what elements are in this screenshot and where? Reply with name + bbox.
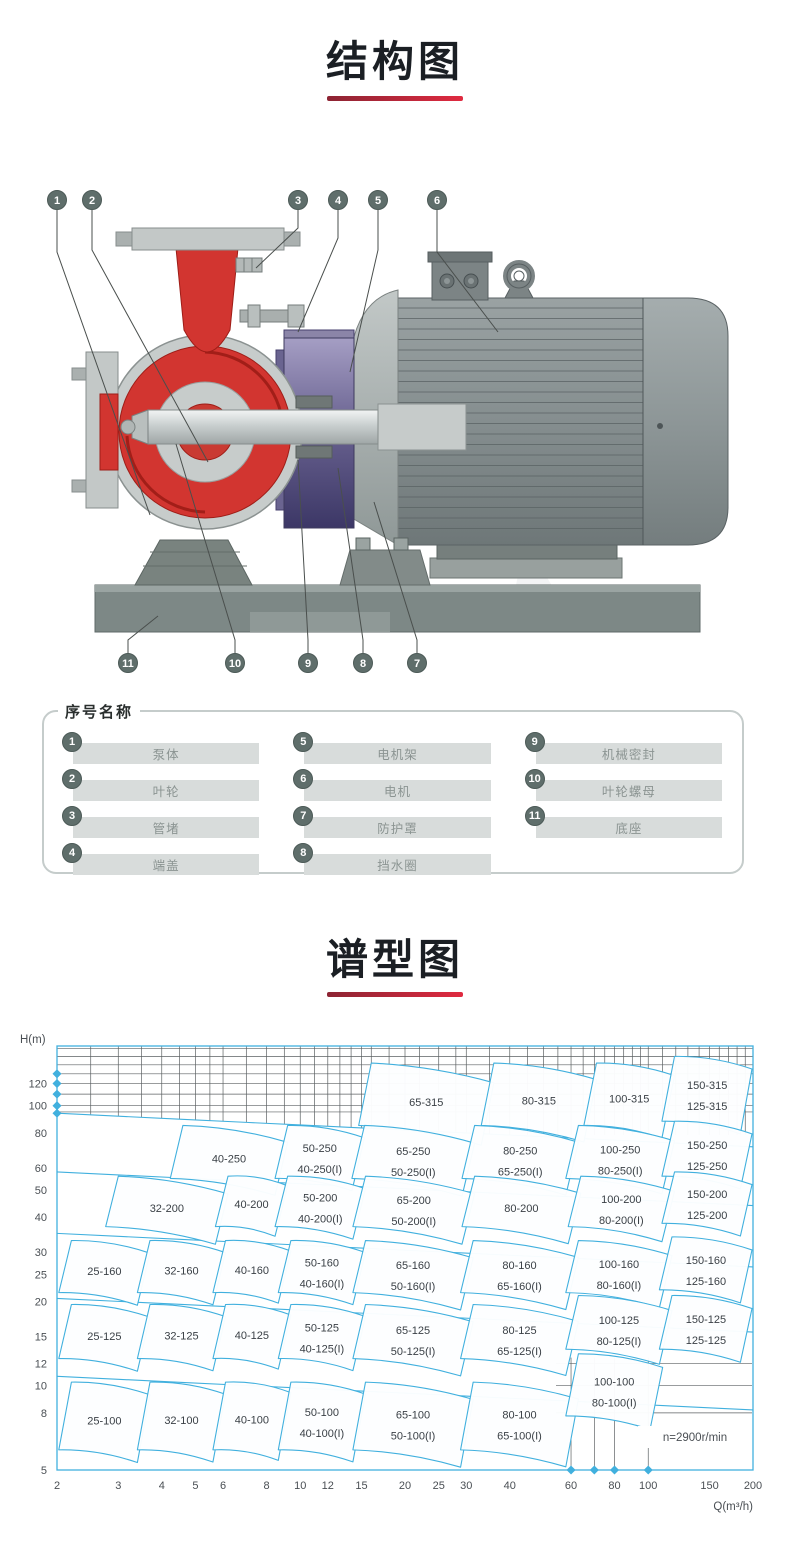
structure-section-title: 结构图 bbox=[0, 28, 790, 89]
legend-item: 防护罩7 bbox=[291, 806, 492, 840]
axis-marker bbox=[52, 1079, 61, 1088]
model-region-label: 65-125 bbox=[396, 1325, 430, 1337]
legend-item-bar: 底座 bbox=[536, 817, 722, 838]
x-tick-label: 30 bbox=[460, 1480, 472, 1492]
structure-title-underline bbox=[327, 96, 463, 101]
model-region bbox=[353, 1241, 473, 1310]
x-tick-label: 6 bbox=[220, 1480, 226, 1492]
legend-item: 泵体1 bbox=[60, 732, 261, 766]
model-region-label: 32-100 bbox=[164, 1415, 198, 1427]
axis-marker bbox=[610, 1465, 619, 1474]
y-tick-label: 100 bbox=[29, 1101, 47, 1113]
model-region-label: 125-160 bbox=[686, 1276, 726, 1288]
axis-marker bbox=[590, 1465, 599, 1474]
model-region-label: 65-315 bbox=[409, 1097, 443, 1109]
y-tick-label: 120 bbox=[29, 1079, 47, 1091]
x-tick-label: 20 bbox=[399, 1480, 411, 1492]
model-region-label: 65-160 bbox=[396, 1260, 430, 1272]
y-tick-label: 60 bbox=[35, 1163, 47, 1175]
axis-marker bbox=[52, 1109, 61, 1118]
terminal-box bbox=[428, 252, 492, 300]
model-region bbox=[566, 1354, 663, 1430]
model-region-label: 25-100 bbox=[87, 1415, 121, 1427]
legend-item-bar: 机械密封 bbox=[536, 743, 722, 764]
model-region-label: 80-100 bbox=[502, 1409, 536, 1421]
model-region-label: 50-100(I) bbox=[391, 1431, 436, 1443]
model-region bbox=[353, 1382, 473, 1467]
y-tick-label: 40 bbox=[35, 1212, 47, 1224]
model-region-label: 32-160 bbox=[164, 1266, 198, 1278]
model-region-label: 80-160 bbox=[502, 1260, 536, 1272]
model-region-label: 40-160(I) bbox=[300, 1279, 345, 1291]
x-tick-label: 100 bbox=[639, 1480, 657, 1492]
x-tick-label: 3 bbox=[115, 1480, 121, 1492]
model-region-label: 80-125(I) bbox=[597, 1336, 642, 1348]
model-region-label: 25-125 bbox=[87, 1331, 121, 1343]
y-tick-label: 12 bbox=[35, 1359, 47, 1371]
model-region-label: 32-125 bbox=[164, 1331, 198, 1343]
model-region-label: 65-160(I) bbox=[497, 1281, 542, 1293]
legend-item: 管堵3 bbox=[60, 806, 261, 840]
legend-item-bar: 泵体 bbox=[73, 743, 259, 764]
x-tick-label: 4 bbox=[159, 1480, 165, 1492]
model-region-label: 50-200 bbox=[303, 1193, 337, 1205]
callout-number: 4 bbox=[335, 195, 342, 207]
model-region-label: 50-125(I) bbox=[391, 1346, 436, 1358]
model-region-label: 100-100 bbox=[594, 1377, 634, 1389]
y-tick-label: 50 bbox=[35, 1185, 47, 1197]
model-region-label: 125-250 bbox=[687, 1161, 727, 1173]
discharge-nozzle bbox=[116, 228, 300, 352]
model-region bbox=[662, 1172, 752, 1236]
legend-item-number: 2 bbox=[62, 769, 82, 789]
model-region-label: 150-125 bbox=[686, 1314, 726, 1326]
axis-marker bbox=[567, 1465, 576, 1474]
x-tick-label: 12 bbox=[322, 1480, 334, 1492]
model-region-label: 40-250 bbox=[212, 1153, 246, 1165]
model-region-label: 80-250(I) bbox=[598, 1166, 643, 1178]
model-region-label: 65-200 bbox=[397, 1195, 431, 1207]
type-spectrum-chart: 65-31580-315100-315150-315125-31540-2505… bbox=[0, 1030, 790, 1545]
y-tick-label: 10 bbox=[35, 1381, 47, 1393]
callout-number: 5 bbox=[375, 195, 381, 207]
model-region-label: 40-100 bbox=[235, 1414, 269, 1426]
legend-item-number: 1 bbox=[62, 732, 82, 752]
pump-structure-diagram: 1234561110987 bbox=[40, 185, 760, 680]
legend-grid: 泵体1叶轮2管堵3端盖4电机架5电机6防护罩7挡水圈8机械密封9叶轮螺母10底座… bbox=[44, 712, 742, 883]
x-tick-label: 60 bbox=[565, 1480, 577, 1492]
model-region-label: 125-125 bbox=[686, 1335, 726, 1347]
legend-item-bar: 电机 bbox=[304, 780, 490, 801]
legend-item-bar: 挡水圈 bbox=[304, 854, 490, 875]
legend-item: 电机架5 bbox=[291, 732, 492, 766]
model-region-label: 80-200 bbox=[504, 1203, 538, 1215]
model-region-label: 65-100(I) bbox=[497, 1430, 542, 1442]
x-tick-label: 200 bbox=[744, 1480, 762, 1492]
model-region-label: 80-200(I) bbox=[599, 1215, 644, 1227]
model-region-label: 100-200 bbox=[601, 1194, 641, 1206]
axis-marker bbox=[52, 1069, 61, 1078]
y-tick-label: 15 bbox=[35, 1331, 47, 1343]
legend-item-number: 10 bbox=[525, 769, 545, 789]
model-region-label: 50-160 bbox=[305, 1258, 339, 1270]
legend-item: 端盖4 bbox=[60, 843, 261, 877]
callout-number: 3 bbox=[295, 195, 301, 207]
y-tick-label: 25 bbox=[35, 1269, 47, 1281]
callout-number: 1 bbox=[54, 195, 60, 207]
y-axis-title: H(m) bbox=[20, 1034, 46, 1046]
model-region-label: 80-100(I) bbox=[592, 1398, 637, 1410]
x-axis-title: Q(m³/h) bbox=[713, 1501, 753, 1513]
model-region-label: 100-160 bbox=[599, 1259, 639, 1271]
legend-item-number: 3 bbox=[62, 806, 82, 826]
x-tick-label: 15 bbox=[355, 1480, 367, 1492]
model-region bbox=[659, 1295, 752, 1362]
legend-item-bar: 端盖 bbox=[73, 854, 259, 875]
motor-end-cap bbox=[643, 298, 728, 545]
suction-flange bbox=[72, 352, 118, 508]
model-region-label: 50-200(I) bbox=[391, 1216, 436, 1228]
y-tick-label: 80 bbox=[35, 1128, 47, 1140]
model-region-label: 40-125(I) bbox=[300, 1344, 345, 1356]
legend-item-bar: 管堵 bbox=[73, 817, 259, 838]
model-region bbox=[461, 1382, 579, 1467]
lifting-eye bbox=[505, 264, 533, 298]
legend-item: 底座11 bbox=[523, 806, 724, 840]
model-region-label: 40-200 bbox=[234, 1199, 268, 1211]
callout-number: 8 bbox=[360, 658, 366, 670]
model-region-label: 50-100 bbox=[305, 1407, 339, 1419]
model-region-label: 50-160(I) bbox=[391, 1281, 436, 1293]
model-region-label: 65-125(I) bbox=[497, 1346, 542, 1358]
legend-item-bar: 叶轮螺母 bbox=[536, 780, 722, 801]
legend-item: 机械密封9 bbox=[523, 732, 724, 766]
model-region-label: 150-160 bbox=[686, 1255, 726, 1267]
callout-number: 9 bbox=[305, 658, 311, 670]
axis-marker bbox=[52, 1090, 61, 1099]
model-region-label: 150-200 bbox=[687, 1189, 727, 1201]
legend-item-number: 4 bbox=[62, 843, 82, 863]
model-region-label: 80-315 bbox=[522, 1096, 556, 1108]
speed-annotation: n=2900r/min bbox=[663, 1432, 727, 1444]
callout-number: 11 bbox=[122, 658, 134, 670]
model-region-label: 100-250 bbox=[600, 1145, 640, 1157]
legend-box: 序号名称 泵体1叶轮2管堵3端盖4电机架5电机6防护罩7挡水圈8机械密封9叶轮螺… bbox=[42, 710, 744, 874]
pump-base bbox=[95, 585, 700, 632]
pump-shaft bbox=[121, 404, 466, 450]
legend-item: 叶轮2 bbox=[60, 769, 261, 803]
model-region-label: 125-315 bbox=[687, 1101, 727, 1113]
legend-item-bar: 防护罩 bbox=[304, 817, 490, 838]
x-tick-label: 10 bbox=[294, 1480, 306, 1492]
legend-item-bar: 电机架 bbox=[304, 743, 490, 764]
callout-number: 7 bbox=[414, 658, 420, 670]
model-region-label: 50-125 bbox=[305, 1323, 339, 1335]
model-region-label: 65-100 bbox=[396, 1410, 430, 1422]
x-tick-label: 2 bbox=[54, 1480, 60, 1492]
legend-item: 挡水圈8 bbox=[291, 843, 492, 877]
legend-title: 序号名称 bbox=[58, 701, 140, 722]
model-region-label: 50-250(I) bbox=[391, 1167, 436, 1179]
x-tick-label: 80 bbox=[608, 1480, 620, 1492]
y-tick-label: 8 bbox=[41, 1408, 47, 1420]
x-tick-label: 40 bbox=[504, 1480, 516, 1492]
spectrum-section-title: 谱型图 bbox=[0, 926, 790, 987]
model-region-label: 65-250(I) bbox=[498, 1166, 543, 1178]
model-region bbox=[461, 1305, 579, 1376]
casing-stud bbox=[240, 305, 304, 327]
model-region-label: 150-315 bbox=[687, 1080, 727, 1092]
legend-item-bar: 叶轮 bbox=[73, 780, 259, 801]
discharge-flange bbox=[132, 228, 284, 250]
model-region-label: 40-100(I) bbox=[300, 1428, 345, 1440]
model-region bbox=[275, 1176, 365, 1239]
model-region-label: 80-160(I) bbox=[597, 1280, 642, 1292]
legend-item-number: 11 bbox=[525, 806, 545, 826]
axis-marker bbox=[644, 1465, 653, 1474]
model-region-label: 125-200 bbox=[687, 1210, 727, 1222]
model-region-label: 40-125 bbox=[235, 1330, 269, 1342]
model-region-label: 65-250 bbox=[396, 1146, 430, 1158]
model-region bbox=[278, 1304, 365, 1370]
callout-number: 6 bbox=[434, 195, 440, 207]
model-region bbox=[353, 1305, 473, 1376]
callout-number: 10 bbox=[229, 658, 241, 670]
y-tick-label: 20 bbox=[35, 1296, 47, 1308]
plug-bolt bbox=[236, 258, 262, 272]
model-region-label: 100-125 bbox=[599, 1315, 639, 1327]
callout-number: 2 bbox=[89, 195, 95, 207]
x-tick-label: 150 bbox=[700, 1480, 718, 1492]
legend-item-number: 9 bbox=[525, 732, 545, 752]
model-region-label: 80-250 bbox=[503, 1145, 537, 1157]
model-region-label: 40-160 bbox=[235, 1265, 269, 1277]
x-tick-label: 5 bbox=[192, 1480, 198, 1492]
y-tick-label: 30 bbox=[35, 1247, 47, 1259]
volute-support-foot bbox=[135, 540, 252, 585]
spectrum-title-underline bbox=[327, 992, 463, 997]
y-tick-label: 5 bbox=[41, 1465, 47, 1477]
x-tick-label: 8 bbox=[263, 1480, 269, 1492]
legend-item: 叶轮螺母10 bbox=[523, 769, 724, 803]
model-region-label: 40-250(I) bbox=[297, 1164, 342, 1176]
model-region bbox=[278, 1240, 365, 1304]
model-region-label: 50-250 bbox=[303, 1143, 337, 1155]
model-region-label: 100-315 bbox=[609, 1094, 649, 1106]
model-region-label: 40-200(I) bbox=[298, 1214, 343, 1226]
model-region bbox=[659, 1237, 752, 1303]
x-tick-label: 25 bbox=[433, 1480, 445, 1492]
model-region-label: 25-160 bbox=[87, 1266, 121, 1278]
model-region bbox=[461, 1241, 579, 1310]
model-region-label: 80-125 bbox=[502, 1325, 536, 1337]
model-region-label: 32-200 bbox=[150, 1203, 184, 1215]
legend-item: 电机6 bbox=[291, 769, 492, 803]
model-region-label: 150-250 bbox=[687, 1140, 727, 1152]
end-cap-screw bbox=[657, 423, 663, 429]
